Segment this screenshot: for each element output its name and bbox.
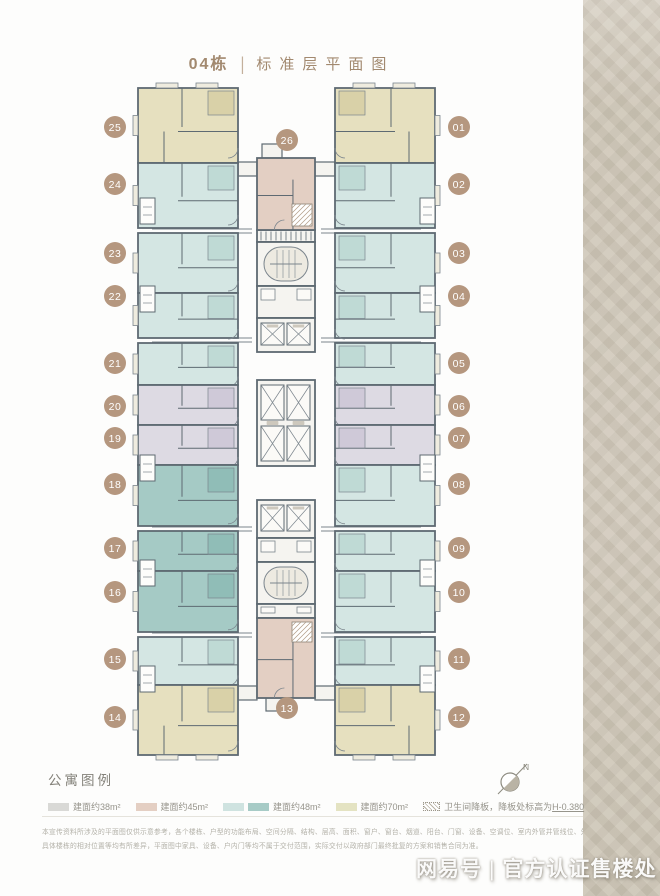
core-lobby (257, 286, 315, 318)
svg-text:20: 20 (109, 401, 122, 413)
background-texture (583, 0, 660, 896)
svg-text:07: 07 (453, 433, 466, 445)
shaft (420, 198, 435, 224)
core-lobby (257, 604, 315, 618)
unit-badge-19: 19 (104, 427, 126, 449)
unit-badge-08: 08 (448, 473, 470, 495)
unit-20 (133, 385, 238, 427)
svg-text:18: 18 (109, 479, 122, 491)
color-swatch (248, 803, 269, 811)
unit-06 (335, 385, 440, 427)
shaft (420, 455, 435, 481)
color-swatch (136, 803, 157, 811)
unit-badge-18: 18 (104, 473, 126, 495)
legend: 公寓图例 建面约38m²建面约45m²建面约48m²建面约70m²卫生间降板，降… (48, 769, 548, 813)
watermark-separator-icon: | (489, 858, 495, 881)
bridge (238, 686, 257, 700)
unit-badge-04: 04 (448, 285, 470, 307)
unit-badge-22: 22 (104, 285, 126, 307)
svg-text:16: 16 (109, 587, 122, 599)
svg-text:10: 10 (453, 587, 466, 599)
unit-badge-14: 14 (104, 706, 126, 728)
disclaimer-line-2: 具体楼栋的相对位置等均有所差异，平面图中家具、设备、户内门等均不属于交付范围，实… (42, 840, 583, 850)
shaft (420, 286, 435, 312)
svg-text:09: 09 (453, 543, 466, 555)
unit-14 (133, 685, 238, 760)
svg-text:04: 04 (453, 291, 466, 303)
sunken-bath (292, 204, 312, 226)
core-elev4 (257, 380, 315, 466)
svg-text:05: 05 (453, 358, 466, 370)
unit-21 (133, 343, 238, 387)
svg-text:19: 19 (109, 433, 122, 445)
unit-badge-07: 07 (448, 427, 470, 449)
unit-badge-02: 02 (448, 173, 470, 195)
legend-item-1: 建面约38m² (48, 800, 121, 813)
legend-label: 建面约45m² (161, 800, 209, 813)
svg-text:22: 22 (109, 291, 122, 303)
unit-badge-06: 06 (448, 395, 470, 417)
unit-badge-11: 11 (448, 648, 470, 670)
shaft (420, 560, 435, 586)
unit-03 (335, 233, 440, 293)
hatch-swatch (423, 802, 440, 811)
unit-badge-03: 03 (448, 242, 470, 264)
shaft (140, 666, 155, 692)
floor-plan: 2524232221201918171615140102030405060708… (0, 0, 583, 780)
core-stair (257, 242, 315, 286)
svg-text:01: 01 (453, 122, 466, 134)
bridge (315, 162, 335, 176)
legend-label: 建面约70m² (361, 800, 409, 813)
svg-text:17: 17 (109, 543, 122, 555)
core-elev2 (257, 500, 315, 538)
core-stair (257, 562, 315, 604)
core-lobby (257, 538, 315, 562)
disclaimer-line-1: 本宣传资料所涉及的平面图仅供示意参考，各个楼栋、户型的功能布局、空间分隔、结构、… (42, 826, 583, 836)
svg-text:21: 21 (109, 358, 122, 370)
shaft (140, 286, 155, 312)
disclaimer: 本宣传资料所涉及的平面图仅供示意参考，各个楼栋、户型的功能布局、空间分隔、结构、… (42, 816, 583, 854)
page: 04栋|标准层平面图 25242322212019181716151401020… (0, 0, 660, 896)
unit-01 (335, 83, 440, 163)
shaft (140, 198, 155, 224)
unit-badge-17: 17 (104, 537, 126, 559)
color-swatch (48, 803, 69, 811)
unit-badge-21: 21 (104, 352, 126, 374)
bridge (315, 686, 335, 700)
core-louver (257, 230, 315, 242)
svg-text:08: 08 (453, 479, 466, 491)
unit-badge-12: 12 (448, 706, 470, 728)
unit-badge-20: 20 (104, 395, 126, 417)
shaft (140, 560, 155, 586)
watermark-text: 官方认证售楼处 (502, 858, 656, 881)
legend-elevation-value: H-0.380 (552, 802, 584, 812)
unit-12 (335, 685, 440, 760)
svg-text:06: 06 (453, 401, 466, 413)
unit-badge-01: 01 (448, 116, 470, 138)
svg-text:15: 15 (109, 654, 122, 666)
unit-badge-26: 26 (276, 129, 298, 151)
svg-text:02: 02 (453, 179, 466, 191)
unit-badge-23: 23 (104, 242, 126, 264)
legend-item-4: 建面约70m² (336, 800, 409, 813)
core-elev2 (257, 318, 315, 352)
sunken-bath (292, 622, 312, 642)
color-swatch (336, 803, 357, 811)
color-swatch (223, 803, 244, 811)
shaft (140, 455, 155, 481)
bridge (238, 162, 257, 176)
unit-badge-25: 25 (104, 116, 126, 138)
legend-item-2: 建面约45m² (136, 800, 209, 813)
shaft (420, 666, 435, 692)
svg-text:25: 25 (109, 122, 122, 134)
watermark-source: 网易号 (416, 858, 482, 881)
compass-n-label: N (523, 762, 529, 772)
unit-23 (133, 233, 238, 293)
unit-05 (335, 343, 440, 387)
watermark: 网易号|官方认证售楼处 (416, 853, 656, 883)
unit-badge-09: 09 (448, 537, 470, 559)
svg-text:03: 03 (453, 248, 466, 260)
legend-items: 建面约38m²建面约45m²建面约48m²建面约70m²卫生间降板，降板处标高为… (48, 800, 548, 813)
svg-text:14: 14 (109, 712, 122, 724)
legend-label: 建面约48m² (273, 800, 321, 813)
svg-text:13: 13 (281, 703, 294, 715)
unit-badge-10: 10 (448, 581, 470, 603)
unit-badge-13: 13 (276, 697, 298, 719)
unit-25 (133, 83, 238, 163)
svg-text:23: 23 (109, 248, 122, 260)
unit-badge-24: 24 (104, 173, 126, 195)
svg-text:11: 11 (453, 654, 465, 666)
legend-item-3: 建面约48m² (223, 800, 321, 813)
unit-badge-15: 15 (104, 648, 126, 670)
svg-text:26: 26 (281, 135, 294, 147)
svg-text:12: 12 (453, 712, 466, 724)
unit-badge-05: 05 (448, 352, 470, 374)
legend-title: 公寓图例 (48, 769, 548, 789)
unit-badge-16: 16 (104, 581, 126, 603)
svg-text:24: 24 (109, 179, 122, 191)
legend-label: 建面约38m² (73, 800, 121, 813)
compass-icon: N (490, 758, 534, 802)
